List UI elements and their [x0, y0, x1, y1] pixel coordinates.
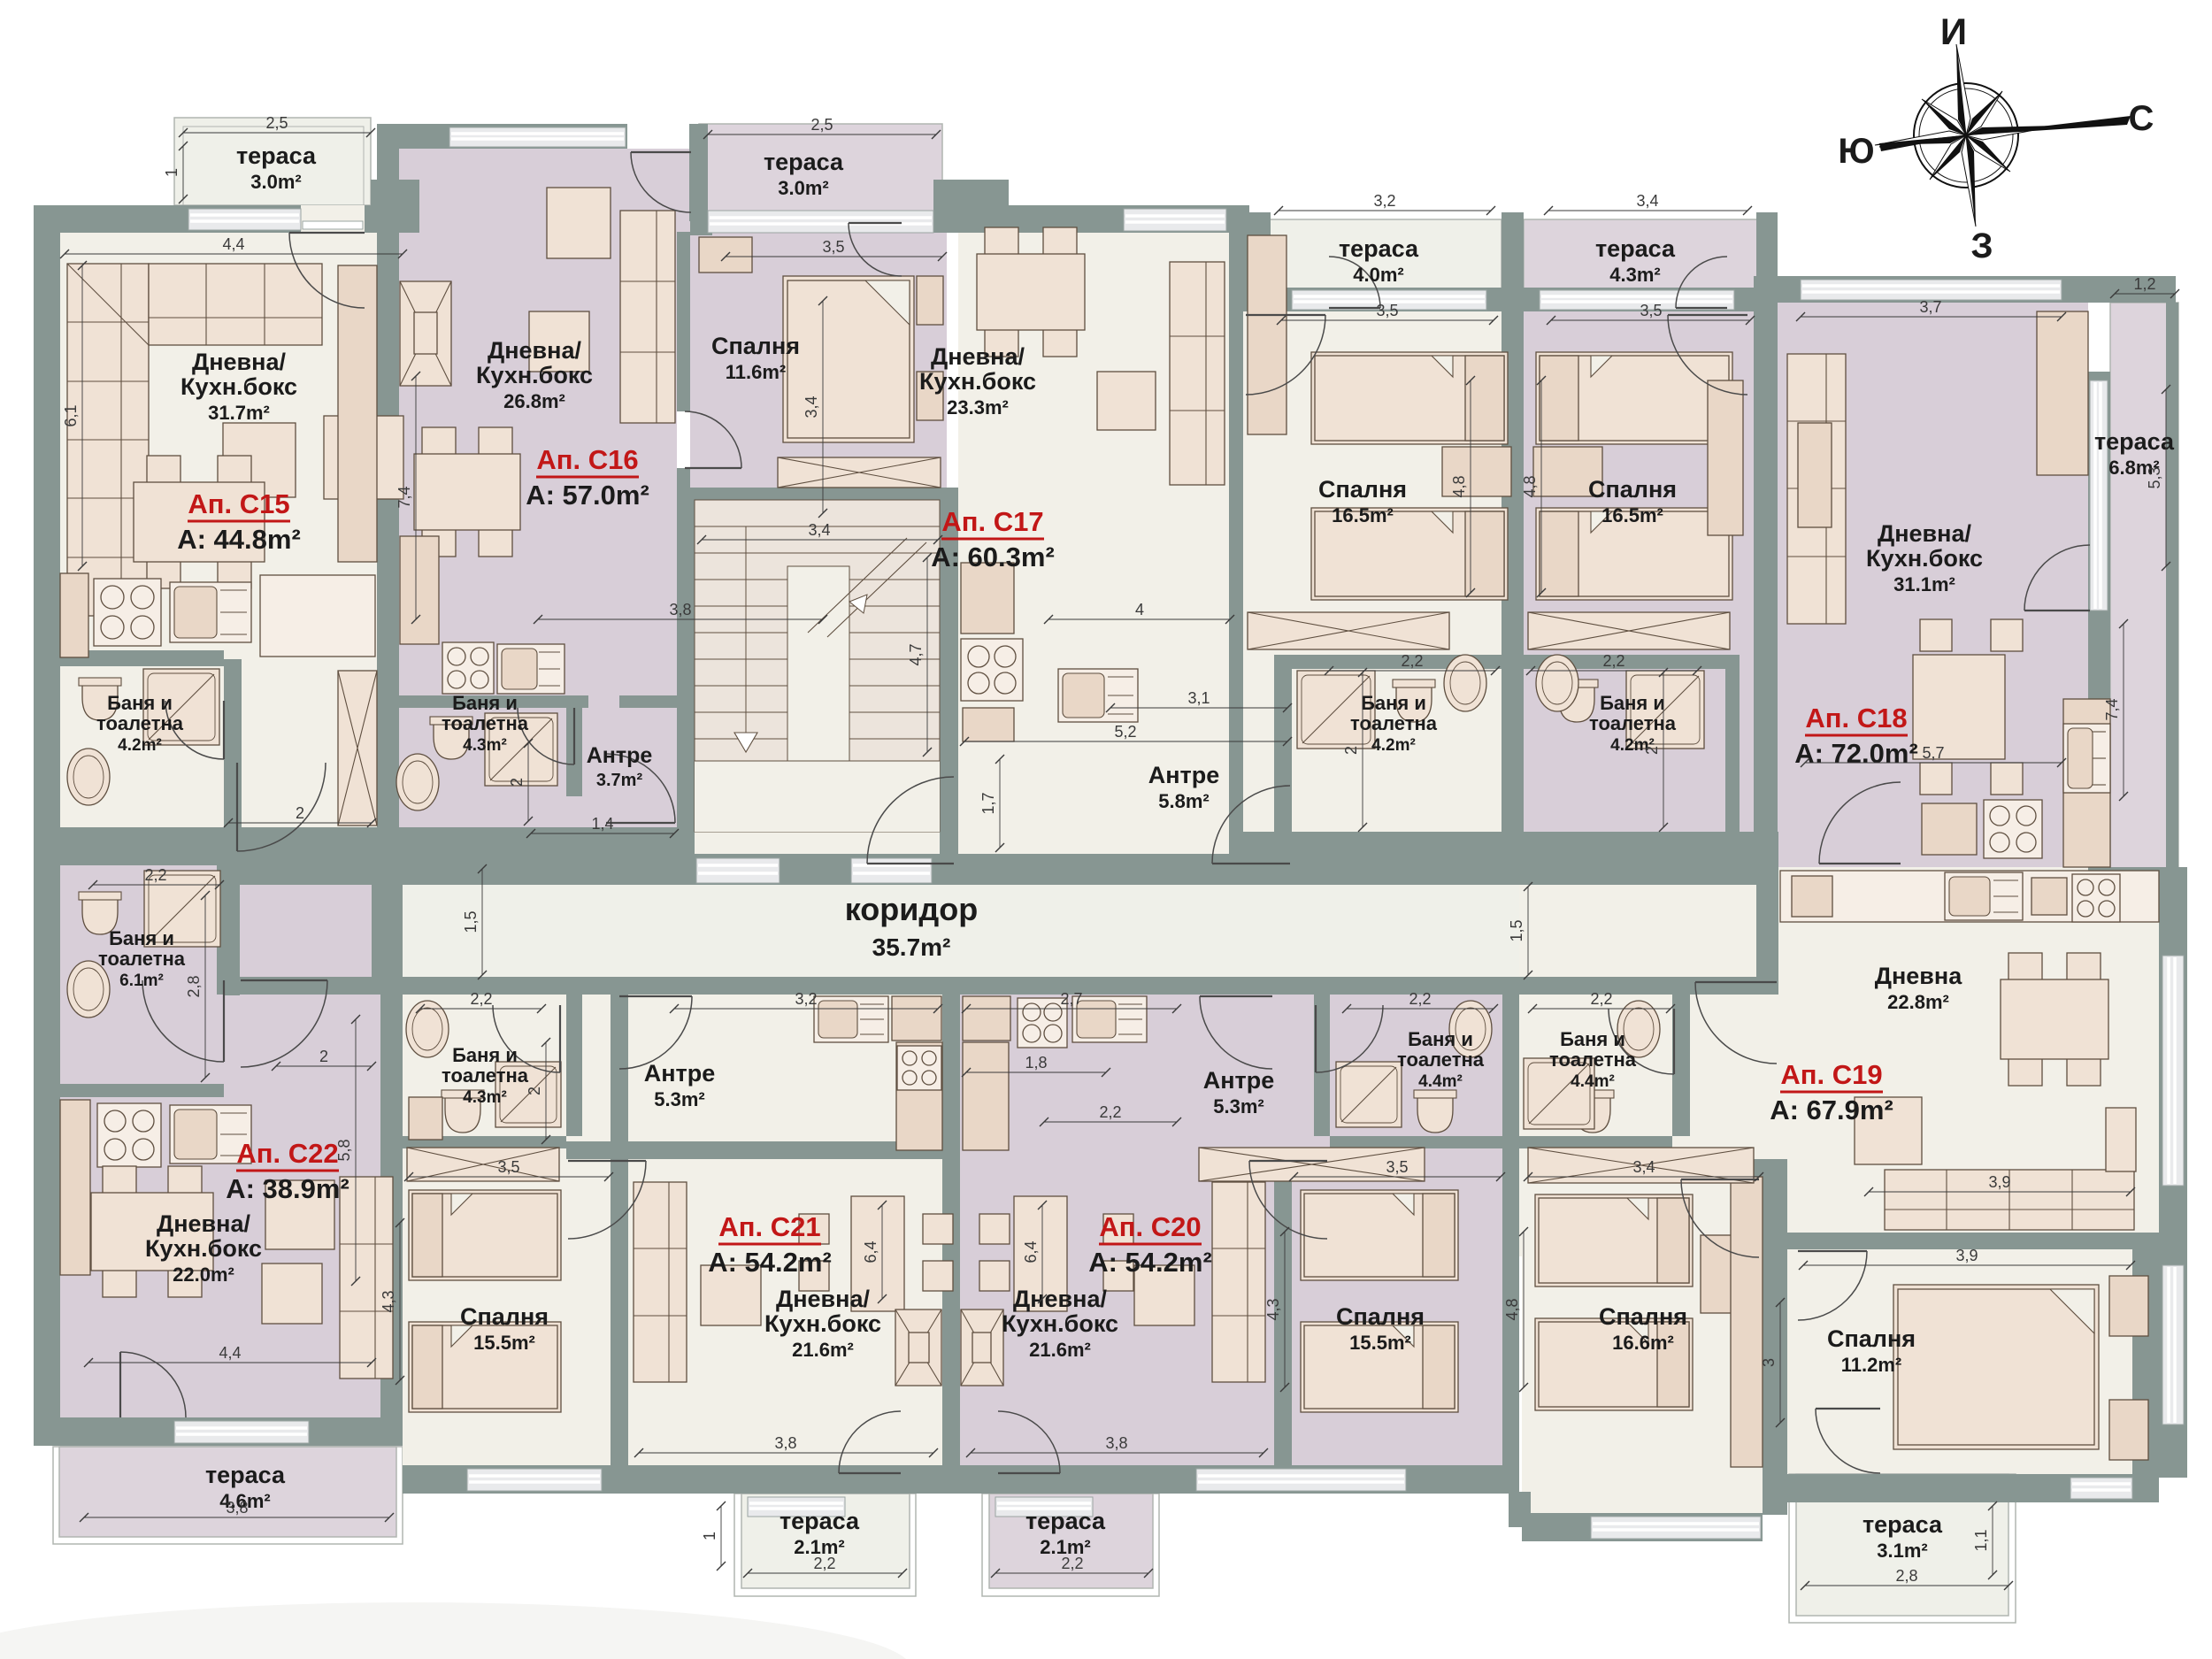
svg-text:3.0m²: 3.0m²	[778, 177, 828, 199]
svg-text:тераса: тераса	[205, 1462, 286, 1488]
svg-text:4,3: 4,3	[380, 1290, 397, 1312]
svg-text:3,4: 3,4	[803, 396, 820, 418]
svg-text:тоалетна: тоалетна	[442, 712, 529, 734]
svg-text:тераса: тераса	[1595, 235, 1676, 262]
svg-text:4: 4	[1135, 601, 1144, 618]
svg-text:3.0m²: 3.0m²	[250, 171, 301, 193]
svg-text:Баня и: Баня и	[1600, 692, 1665, 714]
svg-text:тераса: тераса	[2094, 428, 2175, 455]
svg-text:Антре: Антре	[1148, 762, 1220, 788]
svg-text:4,4: 4,4	[222, 235, 244, 253]
svg-text:тераса: тераса	[1025, 1508, 1106, 1534]
svg-text:1,5: 1,5	[462, 910, 480, 933]
svg-text:Кухн.бокс: Кухн.бокс	[180, 373, 297, 400]
svg-text:4.4m²: 4.4m²	[1571, 1072, 1615, 1091]
svg-text:2: 2	[296, 804, 304, 822]
svg-text:2,2: 2,2	[1401, 652, 1423, 670]
svg-text:11.2m²: 11.2m²	[1841, 1354, 1902, 1376]
svg-text:2: 2	[508, 778, 526, 787]
svg-text:1,8: 1,8	[1025, 1054, 1047, 1071]
svg-text:тераса: тераса	[1339, 235, 1419, 262]
svg-text:Антре: Антре	[644, 1060, 716, 1087]
svg-text:1,1: 1,1	[1972, 1529, 1990, 1551]
svg-text:4,8: 4,8	[1450, 475, 1468, 497]
svg-text:Спалня: Спалня	[711, 333, 800, 359]
svg-text:Баня и: Баня и	[1408, 1028, 1473, 1050]
svg-text:коридор: коридор	[845, 891, 979, 927]
svg-text:1: 1	[701, 1532, 718, 1540]
svg-text:Баня и: Баня и	[1560, 1028, 1625, 1050]
svg-text:2,5: 2,5	[810, 116, 833, 134]
svg-text:23.3m²: 23.3m²	[947, 396, 1009, 419]
svg-text:Ап. C18: Ап. C18	[1805, 703, 1907, 733]
svg-text:4,4: 4,4	[219, 1344, 241, 1362]
svg-text:3,4: 3,4	[808, 521, 830, 539]
svg-text:Баня и: Баня и	[107, 692, 173, 714]
svg-text:5,8: 5,8	[335, 1139, 353, 1161]
svg-text:тераса: тераса	[780, 1508, 860, 1534]
svg-text:тоалетна: тоалетна	[442, 1064, 529, 1087]
svg-text:16.6m²: 16.6m²	[1612, 1332, 1674, 1354]
svg-text:3,8: 3,8	[1105, 1434, 1127, 1452]
svg-text:Ап. C15: Ап. C15	[188, 488, 289, 519]
svg-text:2: 2	[319, 1048, 328, 1065]
svg-text:4,3: 4,3	[1264, 1298, 1282, 1320]
svg-text:3,9: 3,9	[1988, 1173, 2010, 1191]
svg-text:Баня и: Баня и	[452, 1044, 518, 1066]
svg-text:Кухн.бокс: Кухн.бокс	[919, 368, 1036, 395]
svg-text:A: 54.2m²: A: 54.2m²	[708, 1247, 832, 1278]
svg-text:Дневна/: Дневна/	[931, 343, 1025, 370]
svg-text:Кухн.бокс: Кухн.бокс	[1002, 1310, 1118, 1337]
svg-text:Спалня: Спалня	[460, 1303, 549, 1330]
svg-text:21.6m²: 21.6m²	[792, 1339, 854, 1361]
svg-text:И: И	[1940, 11, 1967, 52]
svg-text:3,5: 3,5	[1640, 302, 1662, 319]
svg-text:22.8m²: 22.8m²	[1887, 991, 1949, 1013]
svg-text:A: 57.0m²: A: 57.0m²	[526, 480, 649, 511]
svg-text:3,2: 3,2	[1373, 192, 1395, 210]
svg-text:A: 72.0m²: A: 72.0m²	[1794, 738, 1918, 769]
svg-text:5,7: 5,7	[1922, 744, 1944, 762]
svg-text:35.7m²: 35.7m²	[872, 933, 951, 961]
svg-text:5,3: 5,3	[2146, 466, 2163, 488]
svg-text:2,8: 2,8	[185, 975, 203, 997]
svg-text:Ап. C21: Ап. C21	[718, 1211, 820, 1242]
svg-text:Кухн.бокс: Кухн.бокс	[145, 1235, 262, 1262]
svg-text:2,2: 2,2	[1409, 990, 1431, 1008]
svg-text:Дневна/: Дневна/	[157, 1210, 250, 1237]
svg-text:15.5m²: 15.5m²	[473, 1332, 535, 1354]
svg-text:2,2: 2,2	[470, 990, 492, 1008]
svg-text:3,7: 3,7	[1919, 298, 1941, 316]
svg-text:5.3m²: 5.3m²	[654, 1088, 704, 1110]
svg-text:4,7: 4,7	[907, 643, 925, 665]
svg-text:6,4: 6,4	[1022, 1240, 1040, 1263]
svg-text:4.3m²: 4.3m²	[463, 1088, 507, 1107]
svg-text:2,5: 2,5	[265, 114, 288, 132]
svg-text:1,4: 1,4	[591, 815, 613, 833]
svg-text:тоалетна: тоалетна	[96, 712, 184, 734]
svg-text:Антре: Антре	[1203, 1067, 1275, 1094]
svg-text:15.5m²: 15.5m²	[1349, 1332, 1411, 1354]
svg-text:тераса: тераса	[1863, 1511, 1943, 1538]
svg-text:2: 2	[1342, 746, 1360, 755]
svg-text:Дневна/: Дневна/	[192, 349, 286, 375]
svg-text:3,4: 3,4	[1636, 192, 1658, 210]
svg-text:A: 67.9m²: A: 67.9m²	[1770, 1094, 1893, 1125]
svg-text:Дневна: Дневна	[1875, 963, 1962, 989]
svg-text:5.3m²: 5.3m²	[1213, 1095, 1263, 1118]
svg-text:4.0m²: 4.0m²	[1353, 264, 1403, 286]
svg-text:A: 54.2m²: A: 54.2m²	[1088, 1247, 1212, 1278]
svg-text:2,2: 2,2	[1099, 1103, 1121, 1121]
svg-text:2: 2	[526, 1087, 543, 1095]
svg-text:7,4: 7,4	[2103, 698, 2121, 720]
svg-text:3,5: 3,5	[1386, 1158, 1408, 1176]
svg-text:1,5: 1,5	[1508, 919, 1525, 941]
svg-text:Спалня: Спалня	[1336, 1303, 1425, 1330]
svg-text:2,2: 2,2	[1590, 990, 1612, 1008]
svg-text:26.8m²: 26.8m²	[503, 390, 565, 412]
svg-text:1: 1	[163, 168, 180, 177]
svg-text:6,4: 6,4	[862, 1240, 879, 1263]
svg-text:3,9: 3,9	[1955, 1247, 1978, 1264]
svg-text:3,5: 3,5	[1376, 302, 1398, 319]
svg-text:3,1: 3,1	[1187, 689, 1210, 707]
svg-text:Дневна/: Дневна/	[1013, 1286, 1107, 1312]
svg-text:4.3m²: 4.3m²	[1609, 264, 1660, 286]
svg-text:Баня и: Баня и	[109, 927, 174, 949]
svg-text:2,2: 2,2	[1061, 1555, 1083, 1572]
svg-text:5,2: 5,2	[1114, 723, 1136, 741]
svg-text:Ап. C20: Ап. C20	[1099, 1211, 1201, 1242]
svg-text:3: 3	[1760, 1358, 1778, 1367]
svg-text:Дневна/: Дневна/	[776, 1286, 870, 1312]
svg-text:A: 60.3m²: A: 60.3m²	[931, 541, 1055, 572]
svg-text:4.2m²: 4.2m²	[118, 736, 162, 755]
svg-text:2: 2	[1643, 746, 1661, 755]
svg-text:Ап. C16: Ап. C16	[536, 444, 638, 475]
svg-text:Спалня: Спалня	[1318, 476, 1407, 503]
svg-text:3,2: 3,2	[795, 990, 817, 1008]
svg-text:31.1m²: 31.1m²	[1893, 573, 1955, 595]
svg-text:1,2: 1,2	[2133, 275, 2155, 293]
svg-text:Ап. C19: Ап. C19	[1780, 1059, 1882, 1090]
svg-text:16.5m²: 16.5m²	[1601, 504, 1663, 526]
svg-text:2,2: 2,2	[1602, 652, 1624, 670]
svg-text:Дневна/: Дневна/	[488, 337, 581, 364]
svg-text:тоалетна: тоалетна	[1350, 712, 1438, 734]
svg-text:11.6m²: 11.6m²	[726, 361, 787, 383]
svg-text:2,2: 2,2	[813, 1555, 835, 1572]
svg-text:5.8m²: 5.8m²	[1158, 790, 1209, 812]
svg-text:тераса: тераса	[236, 142, 317, 169]
svg-text:Баня и: Баня и	[1361, 692, 1426, 714]
svg-text:3,5: 3,5	[497, 1158, 519, 1176]
svg-text:Спалня: Спалня	[1827, 1325, 1916, 1352]
svg-text:2,7: 2,7	[1060, 990, 1082, 1008]
svg-text:Баня и: Баня и	[452, 692, 518, 714]
svg-text:3,5: 3,5	[822, 238, 844, 256]
svg-text:4.3m²: 4.3m²	[463, 736, 507, 755]
svg-text:Кухн.бокс: Кухн.бокс	[1866, 545, 1983, 572]
svg-text:тоалетна: тоалетна	[1397, 1048, 1485, 1071]
svg-text:31.7m²: 31.7m²	[208, 402, 270, 424]
svg-text:4.2m²: 4.2m²	[1371, 736, 1416, 755]
svg-text:Кухн.бокс: Кухн.бокс	[764, 1310, 881, 1337]
svg-text:3,4: 3,4	[1632, 1158, 1655, 1176]
svg-text:тоалетна: тоалетна	[1549, 1048, 1637, 1071]
svg-text:22.0m²: 22.0m²	[173, 1263, 234, 1286]
svg-text:6,1: 6,1	[62, 404, 80, 426]
svg-text:Ю: Ю	[1838, 132, 1874, 171]
svg-text:3.1m²: 3.1m²	[1877, 1540, 1927, 1562]
svg-text:A: 38.9m²: A: 38.9m²	[226, 1173, 349, 1204]
svg-text:16.5m²: 16.5m²	[1332, 504, 1394, 526]
svg-text:Спалня: Спалня	[1599, 1303, 1687, 1330]
svg-text:4,8: 4,8	[1521, 475, 1539, 497]
svg-text:2,8: 2,8	[1895, 1567, 1917, 1585]
svg-text:1,7: 1,7	[979, 792, 997, 814]
svg-text:тераса: тераса	[764, 149, 844, 175]
svg-text:7,4: 7,4	[396, 486, 413, 508]
svg-text:3,8: 3,8	[226, 1499, 248, 1517]
svg-text:3,8: 3,8	[669, 601, 691, 618]
svg-text:3.7m²: 3.7m²	[596, 771, 643, 790]
svg-text:21.6m²: 21.6m²	[1029, 1339, 1091, 1361]
svg-text:тоалетна: тоалетна	[98, 948, 186, 970]
svg-text:Дневна/: Дневна/	[1878, 520, 1971, 547]
svg-text:Кухн.бокс: Кухн.бокс	[476, 362, 593, 388]
svg-text:Антре: Антре	[587, 743, 653, 768]
svg-text:Ап. C17: Ап. C17	[941, 506, 1043, 537]
svg-text:2,2: 2,2	[144, 866, 166, 884]
svg-text:Ап. C22: Ап. C22	[236, 1138, 338, 1169]
svg-text:4,8: 4,8	[1503, 1298, 1521, 1320]
svg-text:С: С	[2129, 99, 2154, 138]
svg-text:З: З	[1970, 227, 1993, 265]
svg-text:Спалня: Спалня	[1588, 476, 1677, 503]
svg-text:A: 44.8m²: A: 44.8m²	[177, 524, 301, 555]
svg-text:4.4m²: 4.4m²	[1418, 1072, 1463, 1091]
svg-text:6.1m²: 6.1m²	[119, 972, 164, 990]
svg-text:3,8: 3,8	[774, 1434, 796, 1452]
